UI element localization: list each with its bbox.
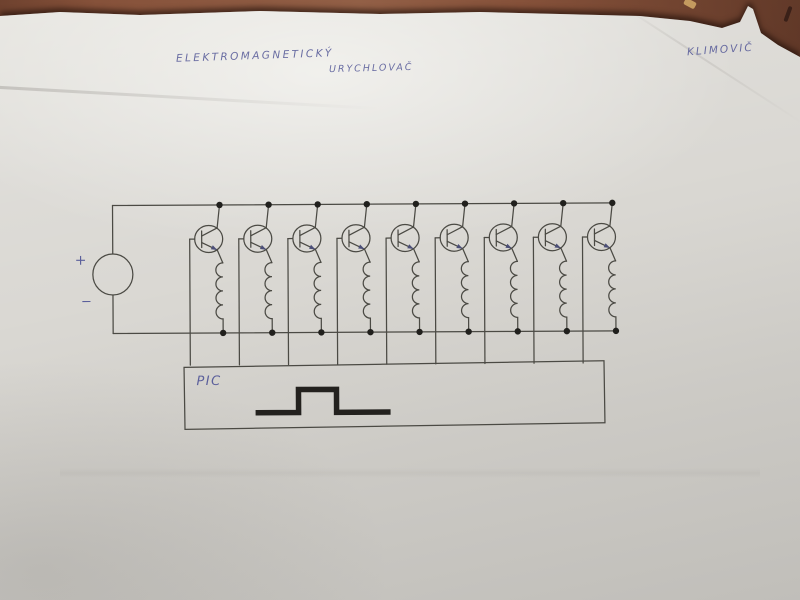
collector-wire bbox=[610, 203, 613, 226]
coil-inductor bbox=[510, 261, 517, 331]
transistor-collector-stroke bbox=[251, 228, 267, 236]
plus-label: + bbox=[75, 253, 87, 269]
collector-wire bbox=[413, 204, 416, 227]
top-rail-junction-dot bbox=[265, 201, 271, 207]
base-wire-to-pic bbox=[239, 239, 240, 365]
driver-stage bbox=[484, 200, 521, 363]
bottom-rail-junction-dot bbox=[564, 328, 570, 334]
bottom-rail-junction-dot bbox=[269, 329, 275, 335]
driver-stage bbox=[288, 201, 325, 364]
base-wire-to-pic bbox=[337, 238, 338, 364]
transistor-collector-stroke bbox=[300, 227, 316, 235]
coil-inductor bbox=[412, 262, 419, 332]
emitter-wire bbox=[561, 248, 567, 261]
collector-wire bbox=[364, 204, 367, 227]
bottom-supply-rail bbox=[113, 331, 618, 334]
transistor-circle bbox=[342, 225, 370, 252]
driver-stage bbox=[239, 201, 276, 364]
transistor-collector-stroke bbox=[349, 227, 365, 235]
minus-label: − bbox=[81, 295, 92, 310]
power-supply: + − bbox=[75, 205, 134, 333]
collector-wire bbox=[266, 205, 269, 228]
pic-label: PIC bbox=[196, 374, 221, 389]
photo-of-schematic: ELEKTROMAGNETICKÝ URYCHLOVAČ KLIMOVIČ + … bbox=[0, 0, 800, 600]
coil-inductor bbox=[559, 261, 566, 331]
emitter-wire bbox=[414, 249, 420, 262]
coil-inductor bbox=[363, 262, 370, 332]
top-supply-rail bbox=[113, 203, 615, 206]
base-wire-to-pic bbox=[435, 238, 436, 364]
emitter-arrowhead bbox=[358, 244, 364, 249]
emitter-wire bbox=[315, 249, 321, 262]
top-rail-junction-dot bbox=[216, 202, 222, 208]
emitter-arrowhead bbox=[407, 244, 413, 249]
emitter-wire bbox=[512, 248, 518, 261]
transistor-collector-stroke bbox=[202, 228, 218, 236]
top-rail-junction-dot bbox=[314, 201, 320, 207]
pic-controller: PIC bbox=[184, 361, 605, 430]
top-rail-junction-dot bbox=[511, 200, 517, 206]
driver-stages bbox=[189, 200, 619, 365]
bottom-rail-junction-dot bbox=[613, 328, 619, 334]
emitter-wire bbox=[266, 250, 272, 263]
driver-stage bbox=[582, 200, 619, 363]
coil-inductor bbox=[461, 262, 468, 332]
transistor-circle bbox=[489, 224, 517, 251]
emitter-arrowhead bbox=[604, 243, 610, 248]
paper-sheet: ELEKTROMAGNETICKÝ URYCHLOVAČ KLIMOVIČ + … bbox=[0, 0, 800, 600]
bottom-rail-junction-dot bbox=[416, 329, 422, 335]
driver-stage bbox=[533, 200, 570, 363]
emitter-arrowhead bbox=[456, 244, 462, 249]
pic-box bbox=[184, 361, 605, 430]
base-wire-to-pic bbox=[190, 239, 191, 365]
emitter-wire bbox=[217, 250, 223, 263]
base-wire-to-pic bbox=[533, 237, 534, 363]
top-rail-junction-dot bbox=[560, 200, 566, 206]
emitter-arrowhead bbox=[505, 244, 511, 249]
bottom-rail-junction-dot bbox=[318, 329, 324, 335]
transistor-collector-stroke bbox=[594, 226, 610, 234]
emitter-wire bbox=[610, 248, 616, 261]
emitter-arrowhead bbox=[555, 243, 561, 248]
collector-wire bbox=[561, 203, 564, 226]
base-wire-to-pic bbox=[386, 238, 387, 364]
bottom-rail-junction-dot bbox=[367, 329, 373, 335]
emitter-wire bbox=[463, 249, 469, 262]
bottom-rail-junction-dot bbox=[465, 328, 471, 334]
emitter-arrowhead bbox=[309, 245, 315, 250]
base-wire-to-pic bbox=[582, 237, 583, 363]
voltage-source-symbol bbox=[93, 254, 133, 295]
coil-inductor bbox=[216, 263, 223, 333]
driver-stage bbox=[337, 201, 374, 364]
coil-inductor bbox=[314, 262, 321, 332]
driver-stage bbox=[386, 201, 423, 364]
top-rail-junction-dot bbox=[364, 201, 370, 207]
circuit-schematic: + − PIC bbox=[0, 0, 800, 600]
emitter-arrowhead bbox=[260, 245, 266, 250]
collector-wire bbox=[462, 204, 465, 227]
transistor-circle bbox=[587, 223, 615, 250]
driver-stage bbox=[435, 200, 472, 363]
collector-wire bbox=[315, 204, 318, 227]
transistor-circle bbox=[391, 224, 419, 251]
driver-stage bbox=[189, 202, 226, 365]
top-rail-junction-dot bbox=[413, 201, 419, 207]
emitter-wire bbox=[365, 249, 371, 262]
coil-inductor bbox=[609, 261, 616, 331]
transistor-collector-stroke bbox=[447, 227, 463, 235]
top-rail-junction-dot bbox=[609, 200, 615, 206]
bottom-rail-junction-dot bbox=[220, 330, 226, 336]
base-wire-to-pic bbox=[288, 239, 289, 365]
base-wire-to-pic bbox=[484, 238, 485, 364]
coil-inductor bbox=[265, 263, 272, 333]
emitter-arrowhead bbox=[211, 245, 217, 250]
bottom-rail-junction-dot bbox=[515, 328, 521, 334]
transistor-collector-stroke bbox=[398, 227, 414, 235]
transistor-circle bbox=[440, 224, 468, 251]
transistor-circle bbox=[538, 224, 566, 251]
transistor-collector-stroke bbox=[496, 226, 512, 234]
transistor-collector-stroke bbox=[545, 226, 561, 234]
collector-wire bbox=[512, 203, 515, 226]
collector-wire bbox=[217, 205, 220, 228]
transistor-circle bbox=[293, 225, 321, 252]
transistor-circle bbox=[244, 225, 272, 252]
top-rail-junction-dot bbox=[462, 200, 468, 206]
transistor-circle bbox=[195, 225, 223, 252]
pulse-waveform bbox=[255, 389, 390, 413]
paper-edge-shadow: ELEKTROMAGNETICKÝ URYCHLOVAČ KLIMOVIČ + … bbox=[0, 0, 800, 600]
